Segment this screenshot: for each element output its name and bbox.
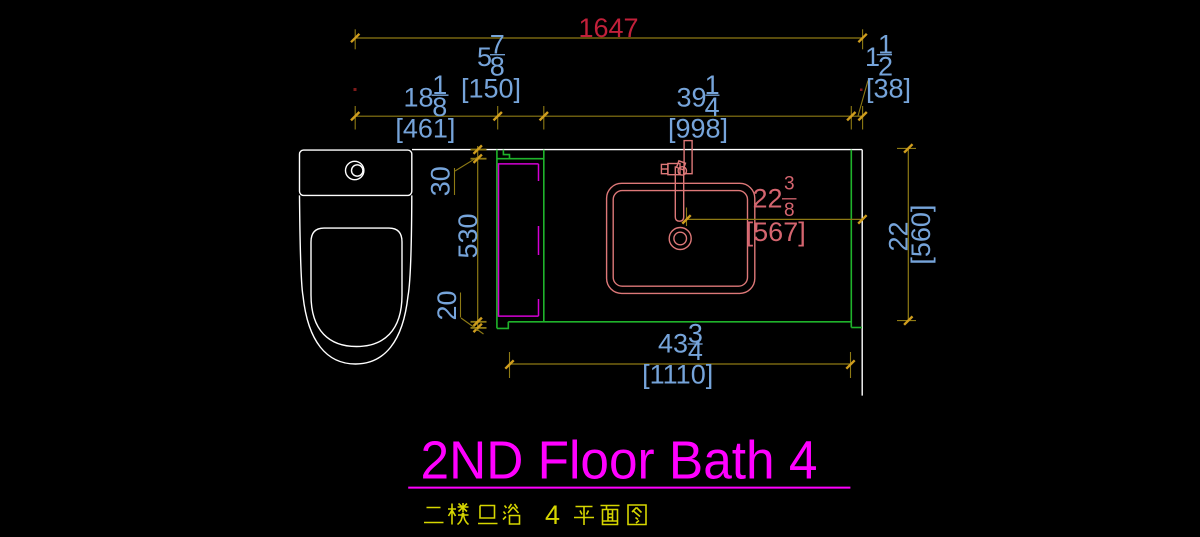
svg-text:18: 18 <box>403 83 433 113</box>
svg-text:[1110]: [1110] <box>642 360 713 390</box>
svg-text:1647: 1647 <box>578 13 638 43</box>
svg-text:[461]: [461] <box>395 114 455 144</box>
svg-text:[38]: [38] <box>866 73 911 103</box>
svg-text:2ND Floor Bath 4: 2ND Floor Bath 4 <box>421 431 818 491</box>
svg-text:43: 43 <box>658 329 688 359</box>
svg-text:530: 530 <box>453 213 483 258</box>
svg-text:4: 4 <box>545 500 560 530</box>
svg-text:3: 3 <box>784 174 795 195</box>
svg-text:39: 39 <box>676 83 706 113</box>
svg-text:[998]: [998] <box>668 114 728 144</box>
svg-text:22: 22 <box>752 184 782 214</box>
svg-text:[567]: [567] <box>746 217 806 247</box>
svg-text:[560]: [560] <box>906 205 936 265</box>
svg-text:[150]: [150] <box>461 73 521 103</box>
svg-text:20: 20 <box>432 290 462 320</box>
svg-text:30: 30 <box>426 166 456 196</box>
